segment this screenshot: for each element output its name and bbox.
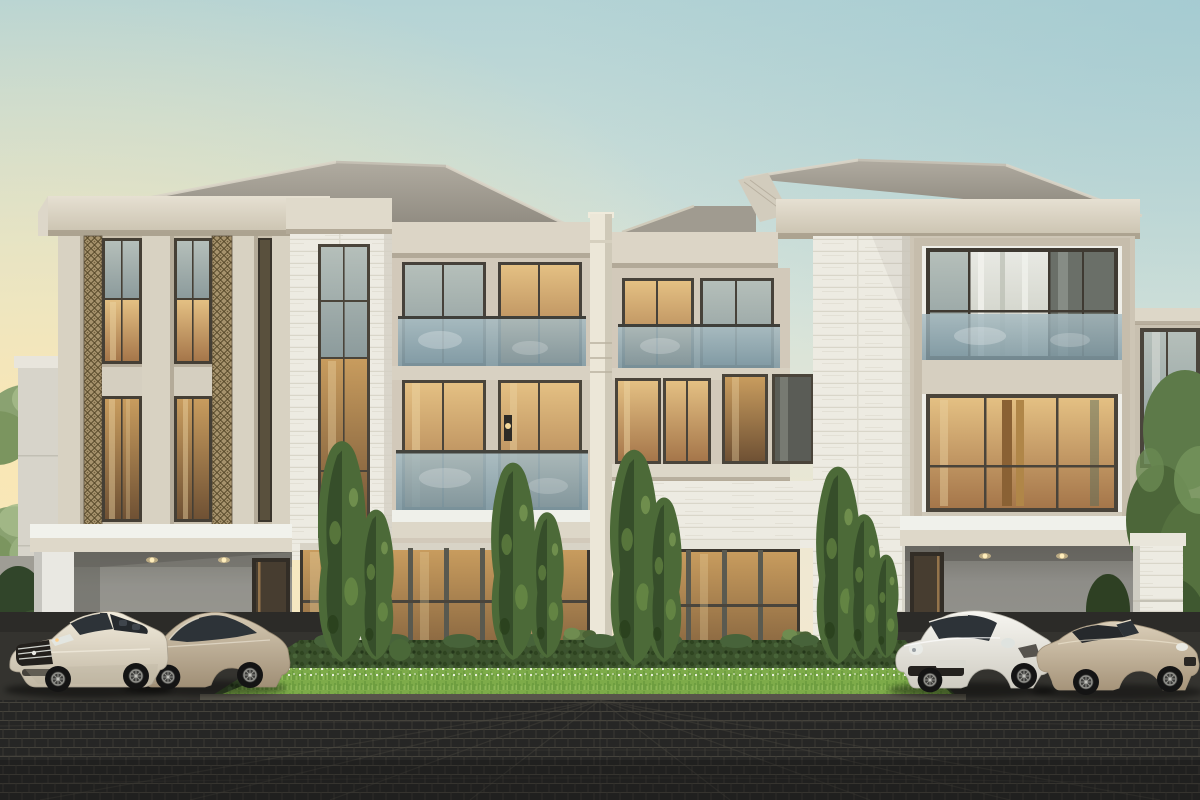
architectural-rendering: 3D architectural rendering of two luxury…: [0, 0, 1200, 800]
wheel: [237, 662, 263, 688]
shrub-ball: [389, 639, 411, 661]
headlight: [1001, 638, 1015, 648]
render-canvas: 3D architectural rendering of two luxury…: [0, 0, 1200, 800]
curb: [200, 694, 966, 701]
license-plate: [936, 660, 966, 668]
fretwork-panel: [84, 236, 102, 528]
cypress: [873, 555, 898, 658]
left-villa-column-block: [58, 236, 290, 552]
cypress: [491, 463, 535, 660]
wheel: [1157, 666, 1183, 692]
left-villa-wing: [392, 258, 592, 552]
juliet-glass: [922, 314, 1122, 360]
left-pilaster-cap: [286, 198, 392, 234]
column: [142, 236, 174, 528]
paver-road: [0, 700, 1200, 800]
cypress: [530, 512, 563, 658]
cypress: [358, 510, 394, 660]
headlight: [1176, 643, 1188, 651]
column: [272, 236, 290, 528]
right-wing-cornice: [612, 232, 778, 268]
right-villa: [612, 160, 1185, 690]
wheel: [918, 668, 943, 693]
flower-edging: [240, 668, 930, 679]
cypress: [318, 441, 366, 662]
left-wing-cornice: [392, 222, 592, 258]
fretwork-panel: [212, 236, 232, 528]
right-villa-window-box: [910, 236, 1135, 540]
wheel: [1011, 663, 1037, 689]
wheel: [123, 663, 149, 689]
wheel: [1073, 669, 1099, 695]
party-wall-pillar: [588, 212, 614, 654]
window-bay: [102, 238, 142, 522]
cypress: [646, 498, 682, 663]
wheel: [45, 666, 71, 692]
window-bay: [174, 238, 212, 522]
